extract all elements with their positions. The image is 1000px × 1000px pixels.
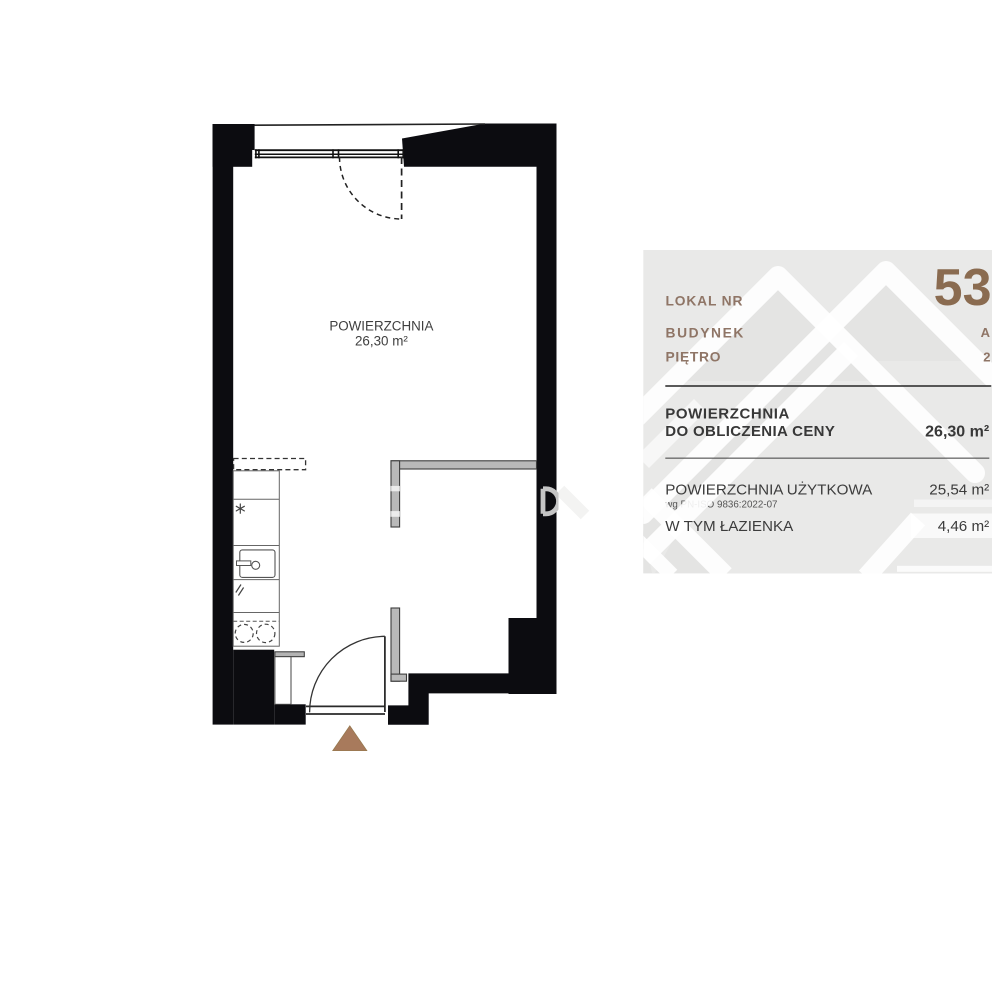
svg-text:DO OBLICZENIA CENY: DO OBLICZENIA CENY (665, 423, 835, 440)
svg-text:26,30 m²: 26,30 m² (925, 423, 989, 440)
svg-text:26,30 m²: 26,30 m² (355, 334, 408, 349)
svg-text:PIĘTRO: PIĘTRO (666, 350, 722, 365)
svg-text:BUDYNEK: BUDYNEK (666, 325, 746, 340)
svg-text:POWIERZCHNIA: POWIERZCHNIA (665, 406, 790, 423)
svg-text:2: 2 (983, 350, 990, 365)
svg-text:A: A (981, 325, 991, 340)
svg-text:POWIERZCHNIA UŻYTKOWA: POWIERZCHNIA UŻYTKOWA (665, 480, 873, 498)
svg-text:W TYM ŁAZIENKA: W TYM ŁAZIENKA (665, 518, 794, 535)
svg-text:4,46 m²: 4,46 m² (938, 518, 990, 535)
svg-text:25,54 m²: 25,54 m² (929, 481, 989, 498)
svg-text:LOKAL NR: LOKAL NR (666, 293, 744, 308)
svg-text:POWIERZCHNIA: POWIERZCHNIA (329, 318, 433, 333)
svg-text:53: 53 (934, 259, 992, 317)
